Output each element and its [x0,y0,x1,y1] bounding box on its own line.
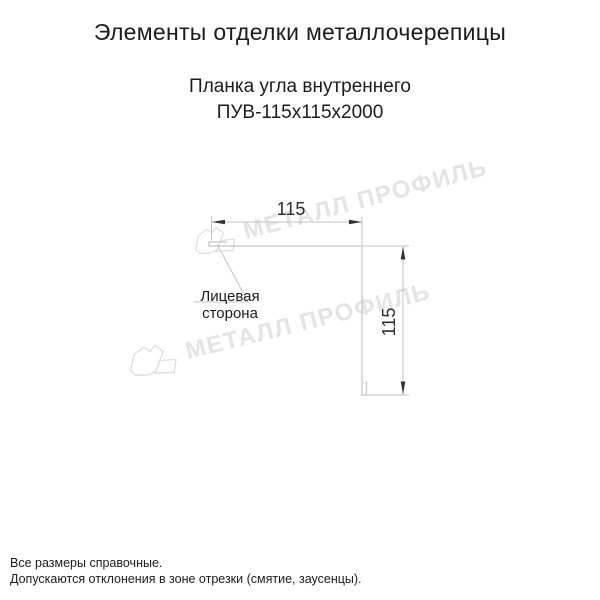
catalog-page: Элементы отделки металлочерепицы Планка … [0,0,600,600]
arrow-up-icon [401,247,406,260]
face-side-label: Лицевая сторона [189,288,271,322]
footer-notes: Все размеры справочные. Допускаются откл… [10,556,362,587]
product-code: ПУВ-115х115х2000 [0,102,600,124]
page-title: Элементы отделки металлочерепицы [0,19,600,46]
product-name: Планка угла внутреннего [0,76,600,98]
dimension-height-value: 115 [379,308,399,337]
arrow-down-icon [401,382,406,395]
arrow-left-icon [212,220,225,225]
footer-note-line2: Допускаются отклонения в зоне отрезки (с… [10,572,362,588]
arrow-right-icon [349,220,362,225]
dimension-width-value: 115 [277,199,306,219]
footer-note-line1: Все размеры справочные. [10,556,362,572]
